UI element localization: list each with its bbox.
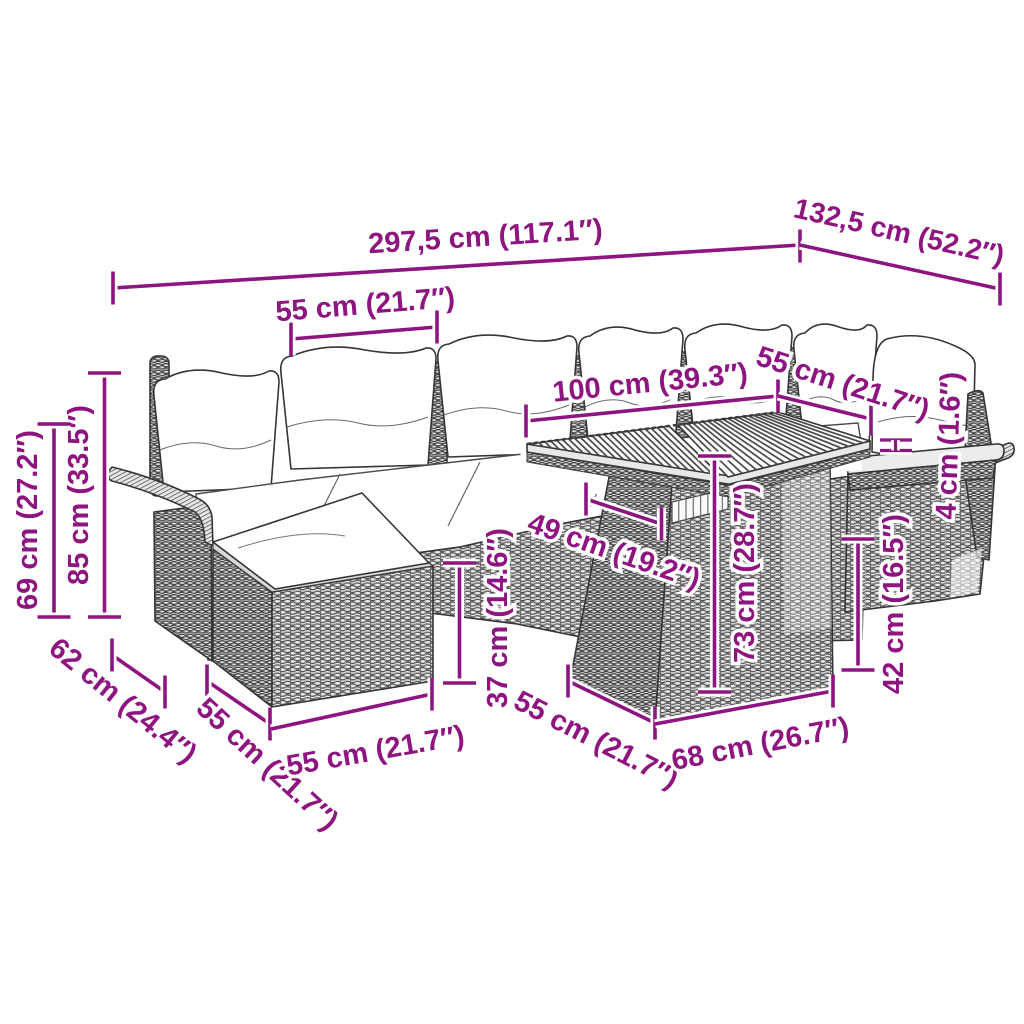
svg-text:42 cm (16.5″): 42 cm (16.5″)	[878, 514, 910, 694]
svg-text:85 cm (33.5″): 85 cm (33.5″)	[63, 405, 95, 585]
svg-text:37 cm (14.6″): 37 cm (14.6″)	[482, 528, 514, 708]
svg-text:69 cm (27.2″): 69 cm (27.2″)	[12, 430, 44, 610]
svg-text:4 cm (1.6″): 4 cm (1.6″)	[930, 371, 967, 520]
svg-text:73 cm (28.7″): 73 cm (28.7″)	[729, 483, 761, 663]
